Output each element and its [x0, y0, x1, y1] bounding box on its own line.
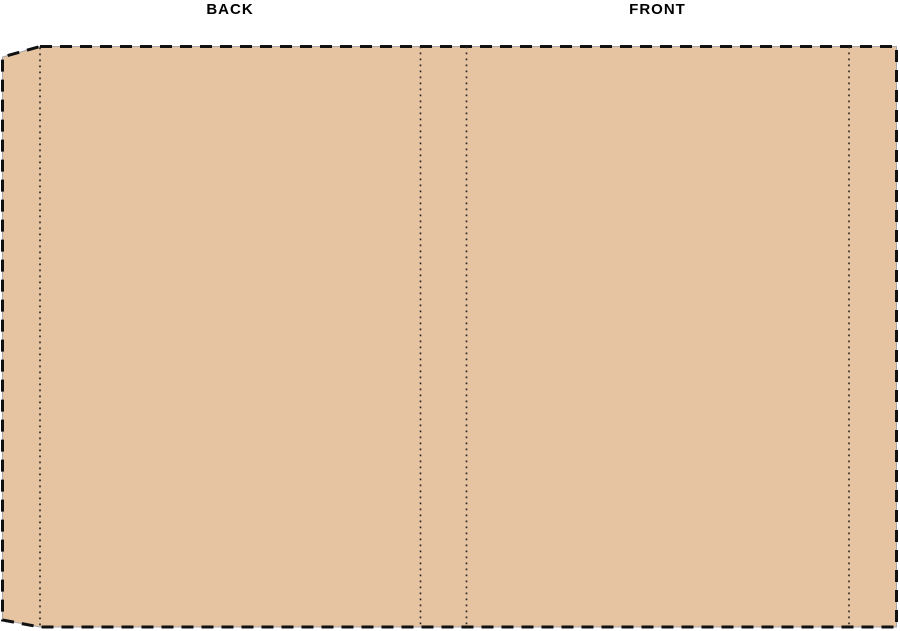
dieline-drawing [0, 0, 900, 631]
book-cover-template: BACK FRONT [0, 0, 900, 631]
cover-shape [3, 47, 897, 628]
